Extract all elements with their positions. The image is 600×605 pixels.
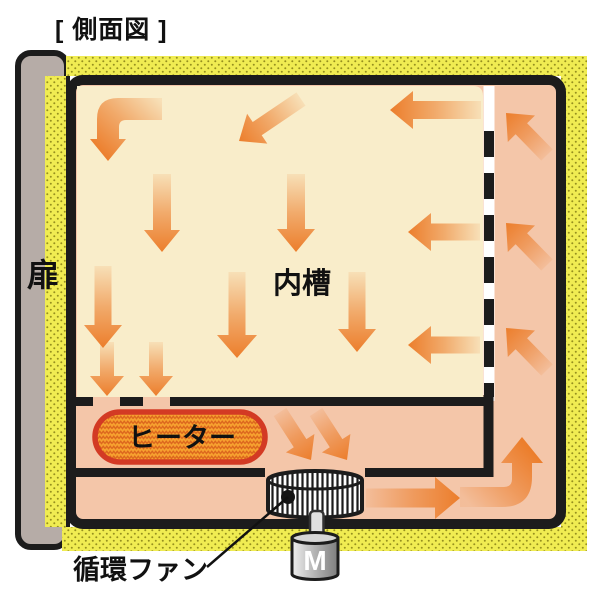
inner-chamber-label: 内槽	[273, 267, 331, 300]
side-view-diagram: ヒーター M [ 側面図 ] 扉 内槽 循環ファン	[0, 0, 600, 600]
heater: ヒーター	[95, 412, 265, 462]
motor-label: M	[303, 545, 326, 576]
insulation-left	[45, 76, 66, 527]
door-label: 扉	[27, 257, 59, 293]
motor: M	[292, 533, 338, 580]
insulation-top	[66, 56, 587, 76]
motor-top	[292, 533, 338, 544]
diagram-canvas: ヒーター M [ 側面図 ] 扉 内槽 循環ファン	[0, 0, 600, 600]
heater-label: ヒーター	[128, 423, 236, 453]
page-title: [ 側面図 ]	[55, 16, 168, 44]
fan-label: 循環ファン	[73, 555, 208, 585]
